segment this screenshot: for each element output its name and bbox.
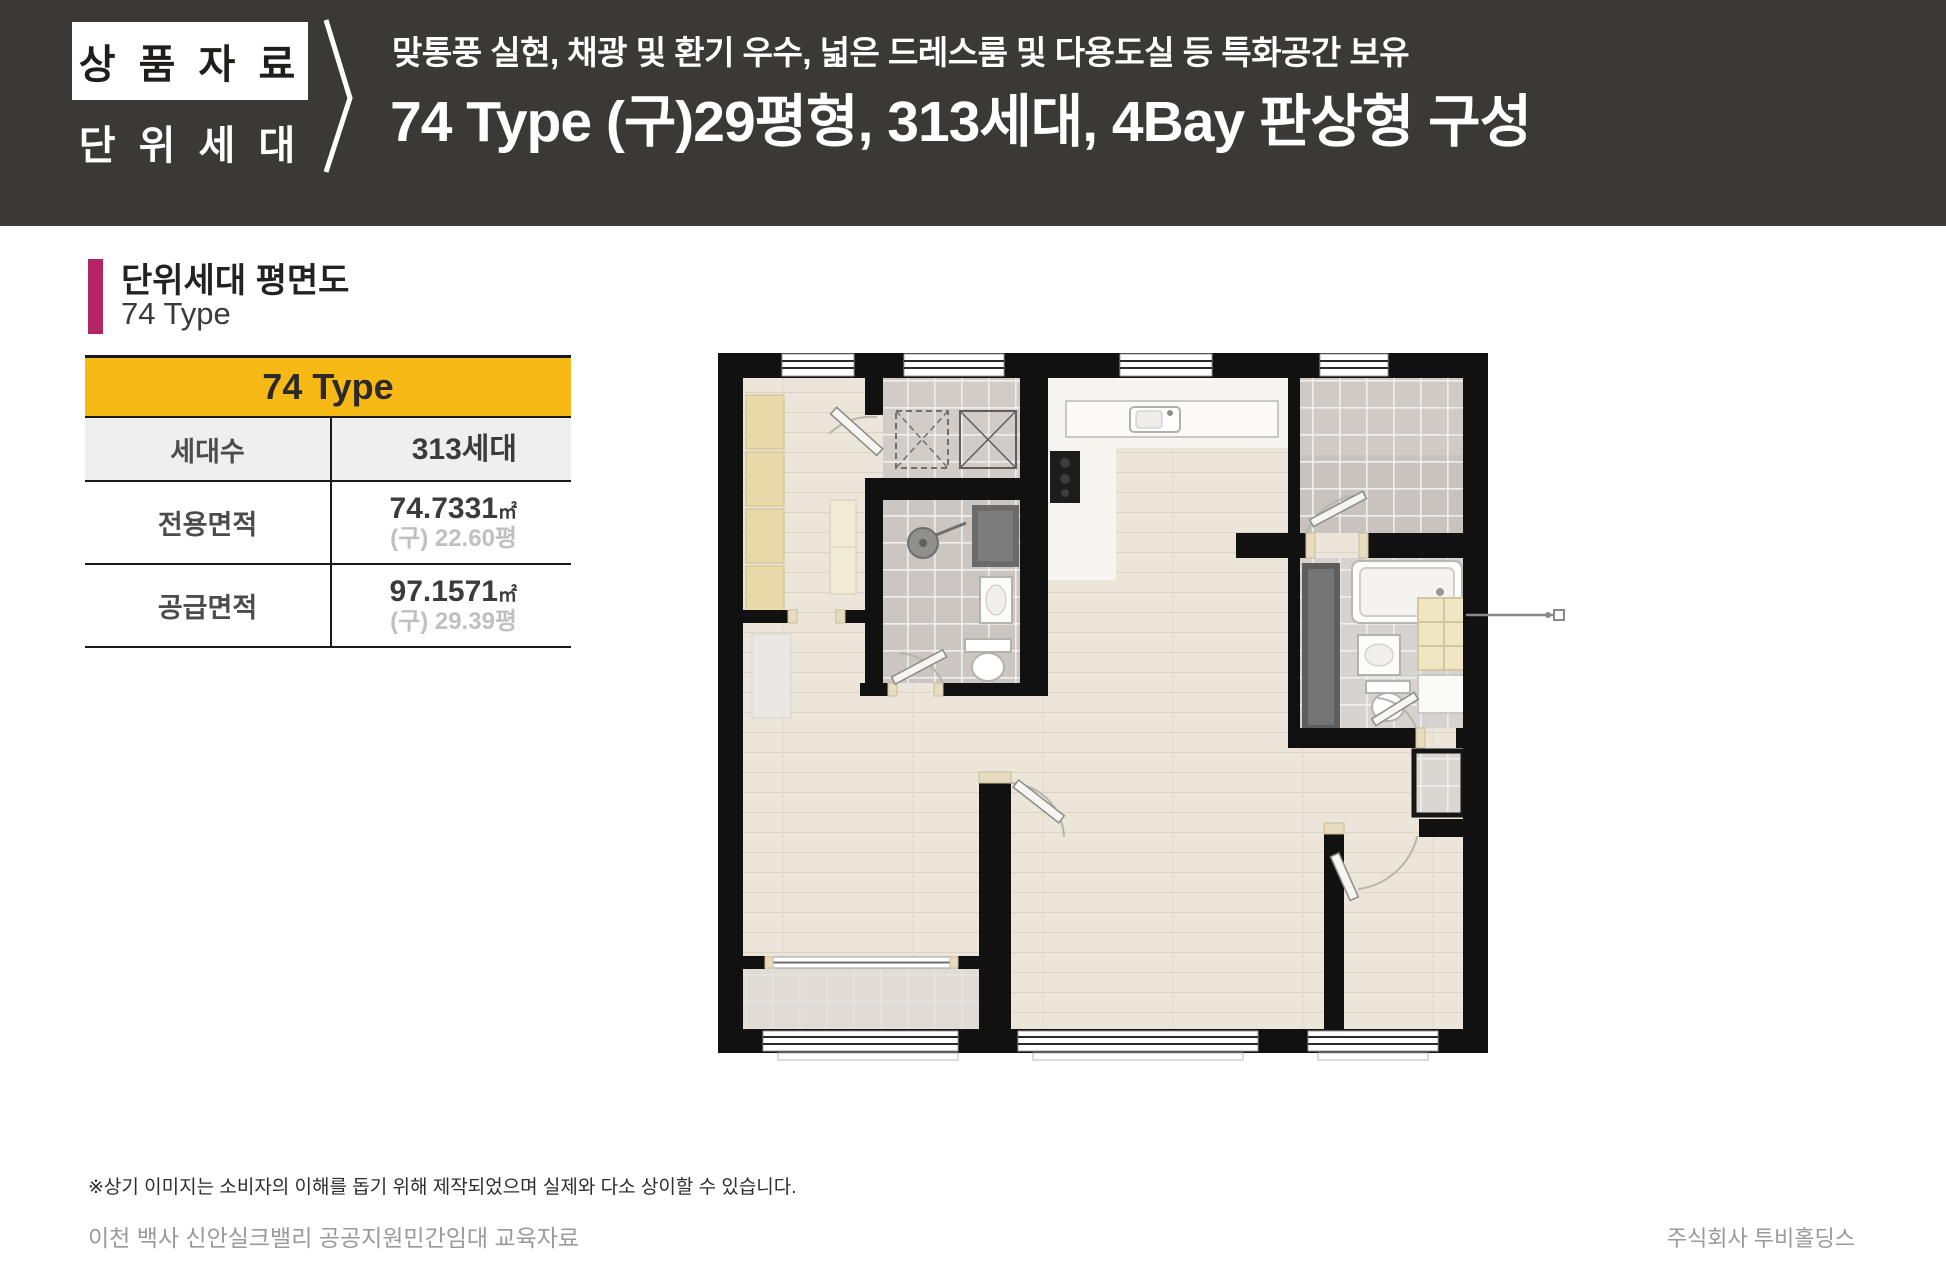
table-row: 공급면적 97.1571㎡ (구) 29.39평 [85, 565, 571, 648]
spec-table: 74 Type 세대수 313세대 전용면적 74.7331㎡ (구) 22.6… [85, 355, 571, 648]
page: 상 품 자 료 단 위 세 대 맞통풍 실현, 채광 및 환기 우수, 넓은 드… [0, 0, 1946, 1271]
supply-area-pyeong: (구) 29.39평 [390, 608, 517, 636]
shoe-cabinet [752, 634, 791, 718]
section-title: 단위세대 평면도 [121, 253, 349, 302]
storage-cabinet [1418, 598, 1470, 713]
cooktop [1050, 451, 1080, 503]
header-badge-box: 상 품 자 료 [72, 22, 308, 100]
header-badge-bottom: 단 위 세 대 [72, 112, 308, 172]
footer-left-text: 이천 백사 신안실크밸리 공공지원민간임대 교육자료 [88, 1219, 579, 1253]
shower-mat [972, 505, 1019, 567]
section-accent-bar [88, 259, 103, 334]
header-band: 상 품 자 료 단 위 세 대 맞통풍 실현, 채광 및 환기 우수, 넓은 드… [0, 0, 1946, 226]
area-number: 97.1571 [390, 575, 498, 608]
exclusive-area-pyeong: (구) 22.60평 [390, 525, 517, 553]
row-value: 97.1571㎡ (구) 29.39평 [330, 565, 569, 646]
row-value: 74.7331㎡ (구) 22.60평 [330, 482, 569, 563]
header-badge-top-label: 상 품 자 료 [79, 32, 302, 90]
spec-table-header: 74 Type [85, 355, 571, 418]
balcony-floor [743, 961, 980, 1029]
ac-room-floor [1414, 751, 1463, 815]
window [1320, 354, 1388, 376]
window [1018, 1031, 1258, 1051]
header-badge-bottom-label: 단 위 세 대 [79, 113, 302, 171]
row-label: 공급면적 [85, 565, 330, 646]
area-number: 74.7331 [390, 492, 498, 525]
row-value: 313세대 [330, 418, 569, 480]
window [763, 1031, 958, 1051]
footer-right-text: 주식회사 투비홀딩스 [1667, 1221, 1855, 1253]
households-value: 313세대 [412, 433, 517, 466]
supply-area-value: 97.1571㎡ [390, 575, 517, 608]
disclaimer-note: ※상기 이미지는 소비자의 이해를 돕기 위해 제작되었으며 실제와 다소 상이… [88, 1172, 797, 1199]
washbasin-fixture [1358, 635, 1400, 675]
exclusive-area-value: 74.7331㎡ [390, 492, 517, 525]
header-subtitle: 맞통풍 실현, 채광 및 환기 우수, 넓은 드레스룸 및 다용도실 등 특화공… [392, 26, 1409, 74]
area-unit: ㎡ [498, 585, 517, 606]
row-label: 전용면적 [85, 482, 330, 563]
window [782, 354, 854, 376]
kitchen-counter [1066, 401, 1278, 437]
washbasin-fixture [980, 577, 1012, 623]
row-label: 세대수 [85, 418, 330, 480]
sliding-door [765, 957, 958, 968]
section-subtitle: 74 Type [121, 296, 231, 332]
floorplan-image [718, 353, 1578, 1068]
area-unit: ㎡ [498, 502, 517, 523]
table-row: 전용면적 74.7331㎡ (구) 22.60평 [85, 482, 571, 565]
window [1120, 354, 1212, 376]
shower-panel [1302, 563, 1340, 731]
window [904, 354, 1004, 376]
table-row: 세대수 313세대 [85, 418, 571, 482]
header-title: 74 Type (구)29평형, 313세대, 4Bay 판상형 구성 [390, 76, 1531, 158]
chevron-right-icon [320, 16, 360, 181]
window [1308, 1031, 1438, 1051]
